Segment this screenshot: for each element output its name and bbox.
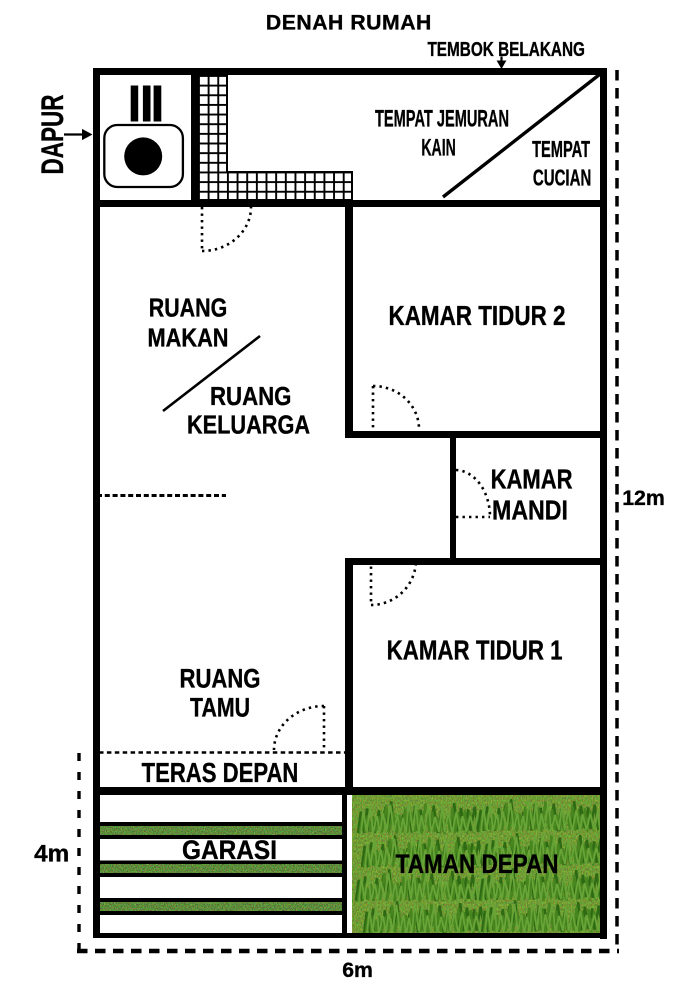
svg-text:TAMAN DEPAN: TAMAN DEPAN [396,849,559,879]
svg-text:TEMPAT: TEMPAT [532,136,590,162]
svg-text:CUCIAN: CUCIAN [533,164,591,190]
svg-text:TAMU: TAMU [190,693,250,723]
svg-text:TEMPAT JEMURAN: TEMPAT JEMURAN [375,106,509,133]
svg-text:RUANG: RUANG [180,664,261,694]
svg-text:TEMBOK BELAKANG: TEMBOK BELAKANG [427,39,585,61]
svg-text:MANDI: MANDI [492,495,568,526]
svg-text:RUANG: RUANG [149,294,228,322]
svg-text:TERAS DEPAN: TERAS DEPAN [142,757,299,788]
svg-text:GARASI: GARASI [182,835,277,865]
svg-text:6m: 6m [342,959,373,982]
svg-text:4m: 4m [34,840,69,867]
svg-text:KAMAR: KAMAR [491,464,573,495]
svg-text:KAMAR TIDUR 1: KAMAR TIDUR 1 [387,635,563,666]
svg-text:KELUARGA: KELUARGA [187,412,310,440]
svg-text:KAMAR TIDUR 2: KAMAR TIDUR 2 [389,300,566,331]
svg-text:RUANG: RUANG [210,383,291,411]
svg-text:MAKAN: MAKAN [148,324,229,352]
svg-text:KAIN: KAIN [421,134,456,161]
svg-text:12m: 12m [622,486,665,510]
svg-text:DENAH RUMAH: DENAH RUMAH [266,11,432,34]
